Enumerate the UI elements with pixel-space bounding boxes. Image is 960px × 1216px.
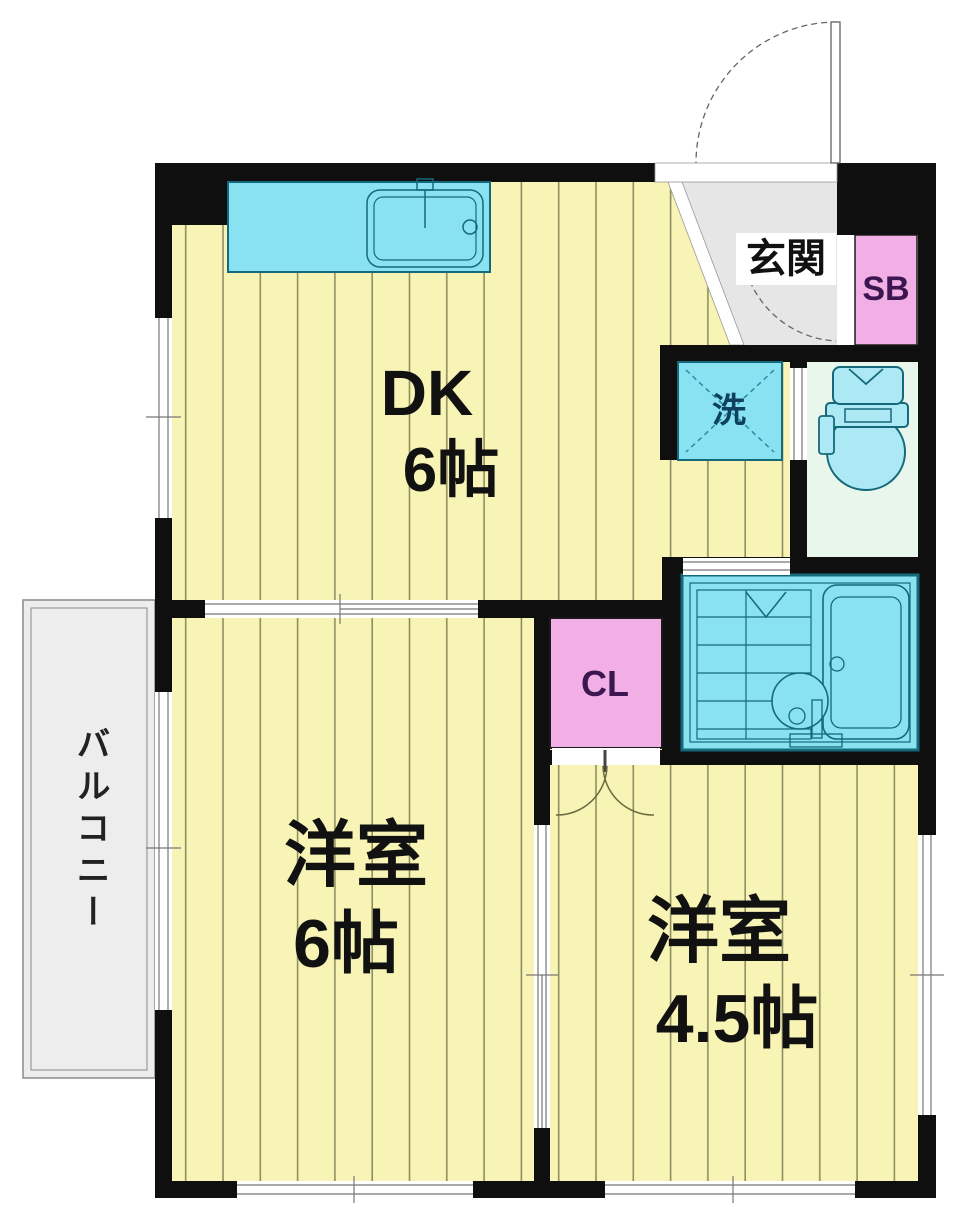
label-west6-size: 6帖 xyxy=(293,910,399,978)
toilet-door-band xyxy=(790,368,807,460)
label-balcony: バルコニー xyxy=(73,726,107,936)
bath-door xyxy=(683,558,790,575)
genkan-sb-gap xyxy=(837,235,855,345)
label-west45-size: 4.5帖 xyxy=(656,985,819,1053)
label-genkan: 玄関 xyxy=(736,233,836,285)
bathroom xyxy=(682,575,918,750)
label-shoe-box: SB xyxy=(862,272,909,306)
window-west45-bottom-band xyxy=(605,1181,855,1198)
window-west6-bottom-band xyxy=(237,1181,473,1198)
toilet-tank xyxy=(833,367,903,404)
entrance-door-leaf xyxy=(831,22,840,163)
label-dk-name: DK xyxy=(381,361,473,425)
wall-washer-nook xyxy=(660,345,678,460)
label-west45-name: 洋室 xyxy=(647,896,791,968)
window-west6-band xyxy=(155,692,172,1010)
entrance-door-arc xyxy=(696,22,837,163)
floor-plan-page: DK 6帖 洋室 6帖 洋室 4.5帖 玄関 SB CL 洗 バルコニー xyxy=(0,0,960,1216)
label-closet: CL xyxy=(581,666,629,702)
label-dk-size: 6帖 xyxy=(403,440,499,502)
toilet-icon xyxy=(819,367,908,490)
wall-block-topright xyxy=(837,163,936,235)
wall-mid-upper xyxy=(534,600,550,825)
bath-sink xyxy=(772,673,828,729)
kitchen-counter-top xyxy=(228,182,490,272)
window-dk-left-band xyxy=(155,318,172,518)
wall-mid-lower xyxy=(534,1128,550,1181)
label-west6-name: 洋室 xyxy=(284,820,428,892)
bath-door-band xyxy=(683,558,790,575)
toilet-body xyxy=(826,403,908,427)
label-washer: 洗 xyxy=(712,394,746,428)
entrance-threshold xyxy=(655,163,837,182)
toilet-door xyxy=(790,368,807,460)
kitchen-counter xyxy=(228,179,490,272)
wall-top xyxy=(155,163,655,182)
toilet-side-unit xyxy=(819,416,834,454)
wall-genkan-bottom xyxy=(662,345,936,362)
